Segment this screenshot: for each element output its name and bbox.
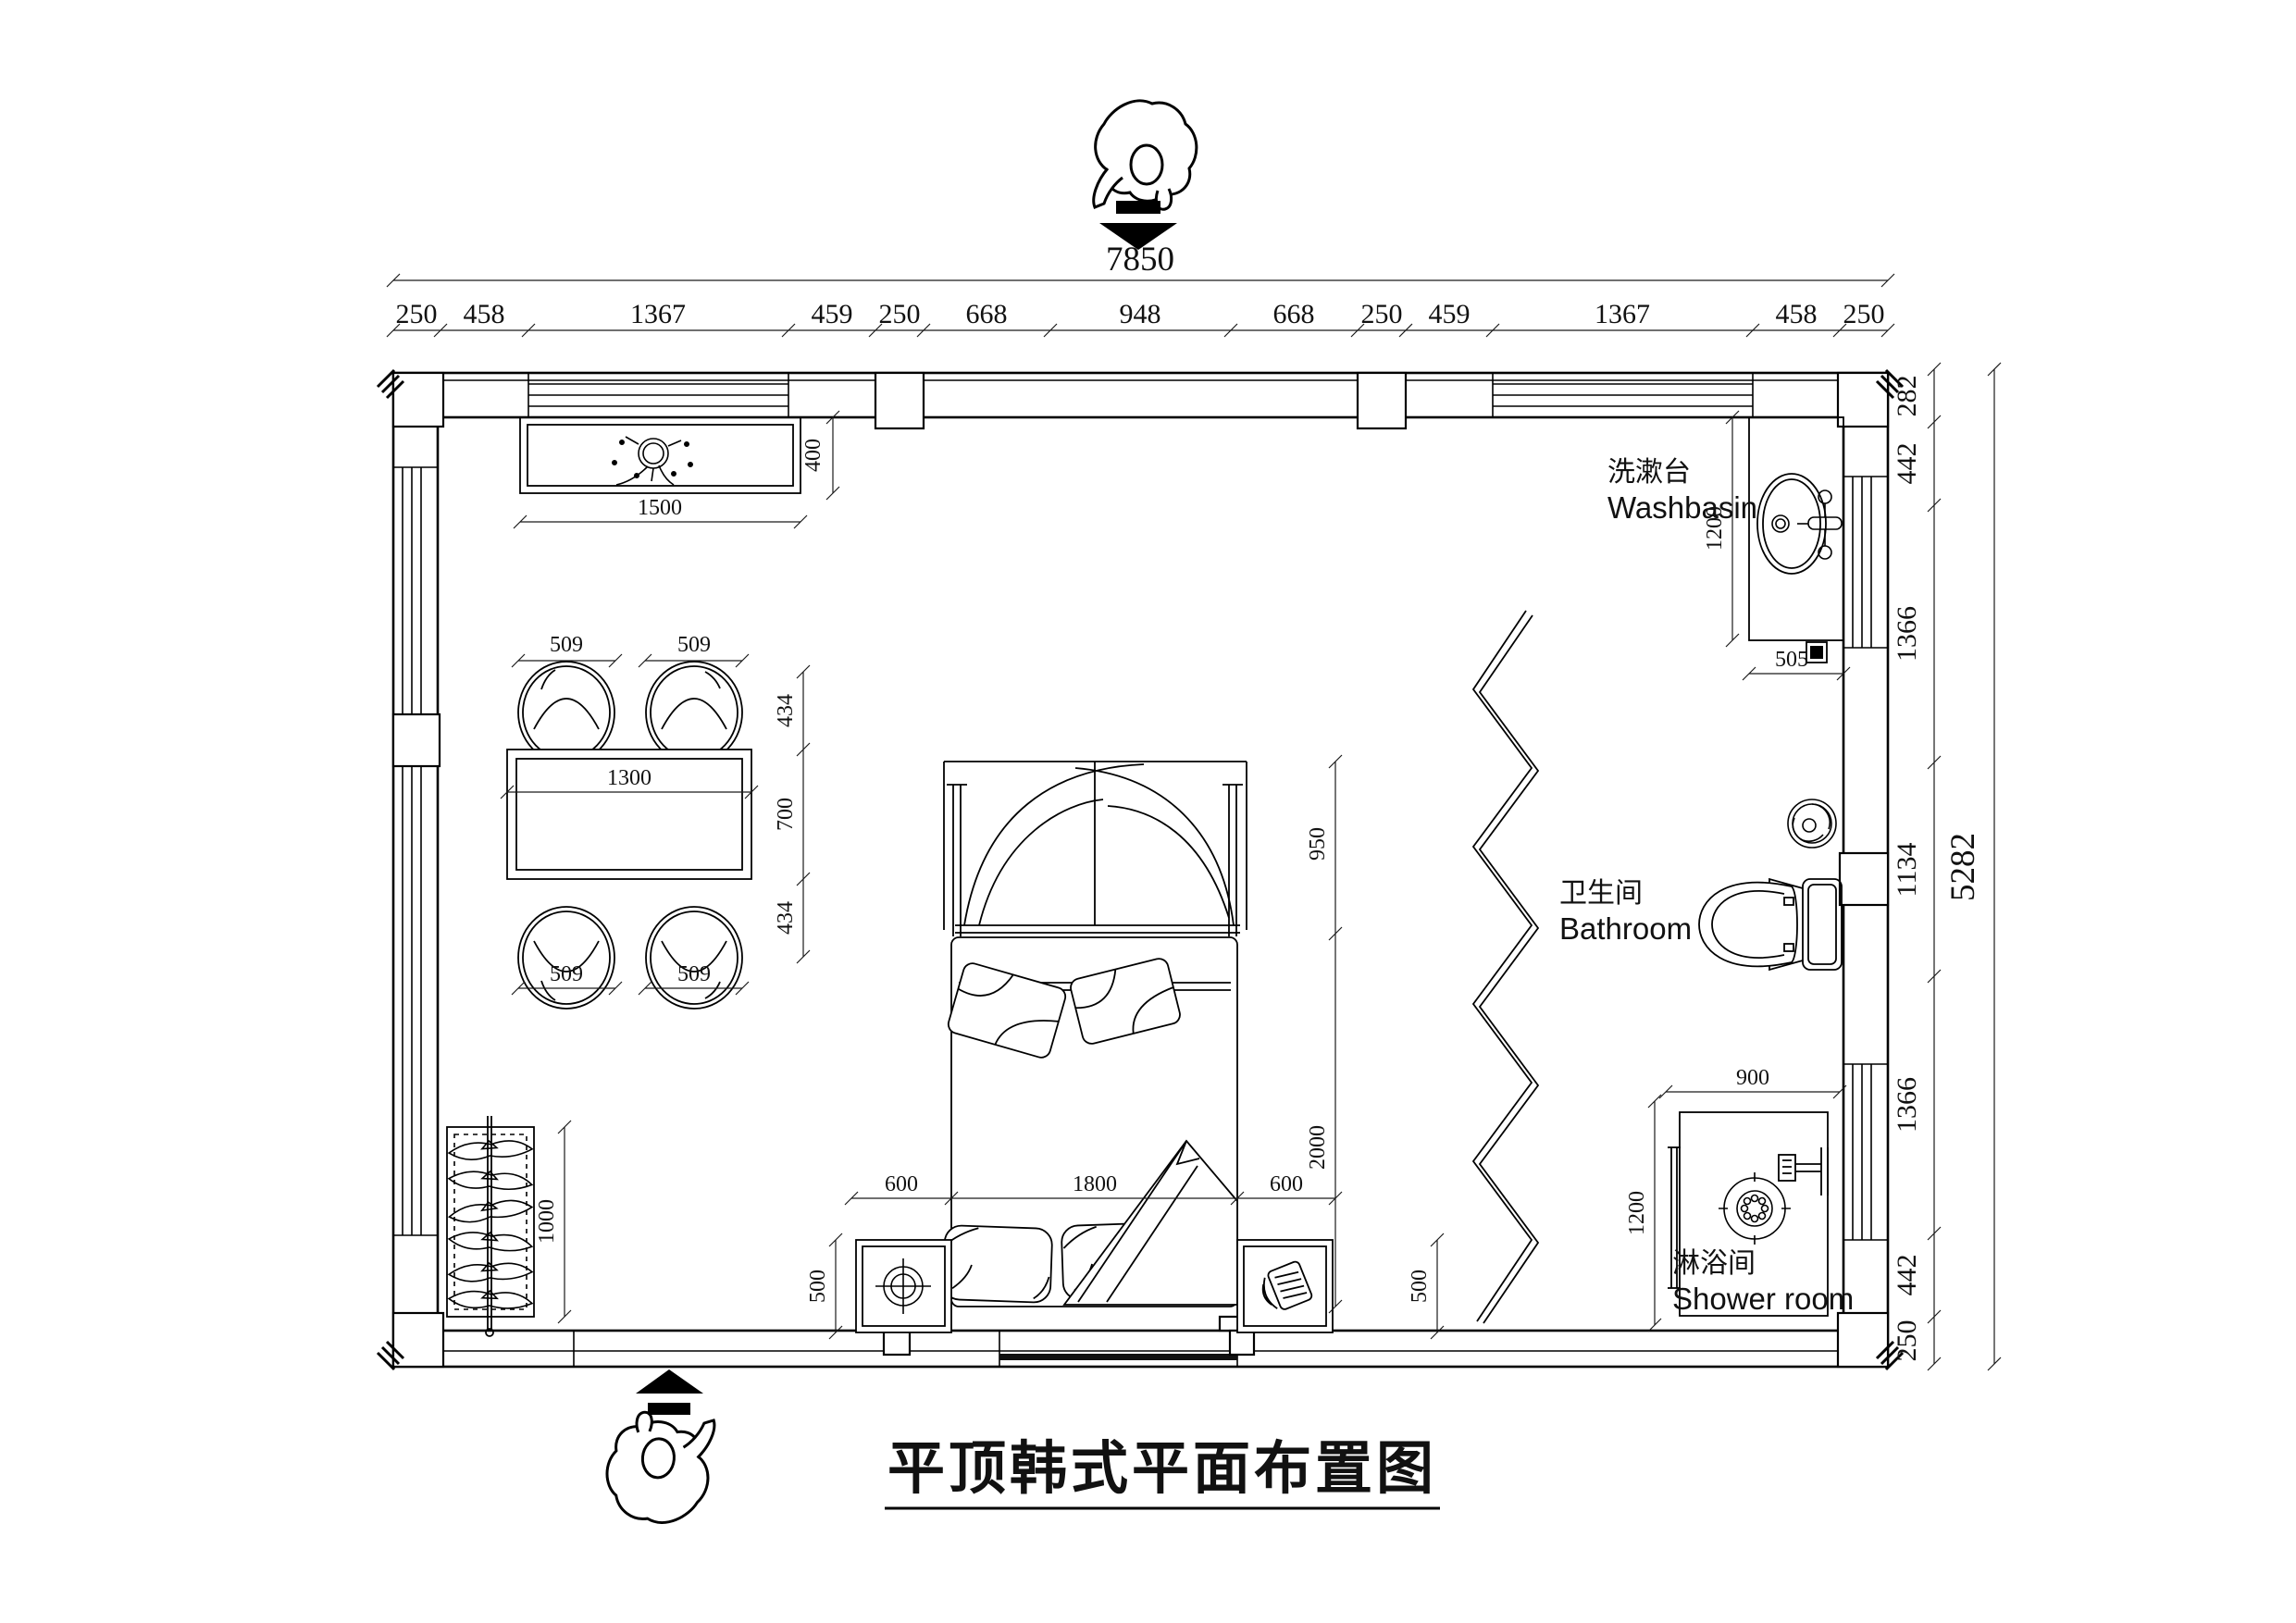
chair xyxy=(646,662,742,763)
pillow xyxy=(943,1225,1053,1303)
dim-top-12: 250 xyxy=(1843,299,1885,329)
dining-table xyxy=(507,662,751,1009)
bed-canopy xyxy=(944,762,1247,936)
dim-right-0: 282 xyxy=(1892,376,1922,417)
dim-top-total: 7850 xyxy=(1106,241,1174,279)
dim-shower-d: 1200 xyxy=(1625,1191,1649,1235)
dim-top-0: 250 xyxy=(396,299,438,329)
dim-top-10: 1367 xyxy=(1595,299,1650,329)
dim-wardrobe: 1000 xyxy=(535,1121,571,1323)
nightstand-right xyxy=(1237,1240,1333,1332)
cushion xyxy=(1069,957,1182,1046)
dim-bed-canopy: 950 xyxy=(1306,827,1330,861)
person-figure-bottom xyxy=(603,1409,715,1527)
dim-right: 282 442 1366 1134 1366 442 250 5282 xyxy=(1892,363,2001,1370)
dim-table-w: 1300 xyxy=(607,766,652,790)
dim-right-2: 1366 xyxy=(1892,606,1922,662)
dim-top: 7850 250 458 1367 459 250 668 948 668 25… xyxy=(387,241,1894,337)
window-right-lower xyxy=(1843,1064,1888,1240)
label-washbasin-en: Washbasin xyxy=(1607,490,1757,525)
dim-washbasin-w: 505 xyxy=(1775,648,1808,672)
dim-cabinet-w: 1500 xyxy=(638,496,682,520)
cushion xyxy=(946,961,1067,1059)
chair xyxy=(518,662,614,763)
dim-top-3: 459 xyxy=(812,299,853,329)
dim-top-8: 250 xyxy=(1361,299,1403,329)
floor-plan-page: 7850 250 458 1367 459 250 668 948 668 25… xyxy=(0,0,2296,1623)
dim-chair-br: 509 xyxy=(677,962,711,986)
window-left-upper xyxy=(393,467,438,714)
dim-right-1: 442 xyxy=(1892,443,1922,485)
wardrobe xyxy=(447,1116,534,1336)
dim-top-9: 459 xyxy=(1429,299,1471,329)
dim-nightstand-r: 500 xyxy=(1408,1270,1432,1303)
dim-top-11: 458 xyxy=(1776,299,1818,329)
dim-right-6: 250 xyxy=(1892,1320,1922,1362)
dim-chair-tl: 509 xyxy=(550,633,583,657)
dim-chair-tr: 509 xyxy=(677,633,711,657)
dim-bed-w: 1800 xyxy=(1073,1172,1117,1196)
dim-table-side-b: 434 xyxy=(774,901,798,935)
person-figure-top xyxy=(1094,101,1197,209)
dim-shower-w: 900 xyxy=(1736,1066,1769,1090)
label-washbasin-zh: 洗漱台 xyxy=(1607,457,1691,488)
label-shower-zh: 淋浴间 xyxy=(1672,1248,1756,1279)
dim-cabinet: 1500 400 xyxy=(514,411,839,528)
nightstand-left xyxy=(856,1240,951,1332)
toilet xyxy=(1699,879,1842,970)
dim-right-4: 1366 xyxy=(1892,1077,1922,1133)
shower-drain-icon xyxy=(1719,1172,1791,1245)
entry-arrow-up-icon xyxy=(636,1369,703,1415)
label-bathroom-en: Bathroom xyxy=(1559,911,1692,946)
window-left-lower xyxy=(393,766,438,1235)
exhaust-fan-icon xyxy=(1788,799,1836,848)
dim-cabinet-d: 400 xyxy=(801,439,825,472)
dim-top-7: 668 xyxy=(1273,299,1315,329)
window-right-upper xyxy=(1843,477,1888,648)
chair xyxy=(518,907,614,1009)
drawing-title: 平顶韩式平面布置图 xyxy=(887,1437,1437,1501)
plant-decor xyxy=(613,437,692,485)
washbasin-counter xyxy=(1749,417,1843,663)
bed xyxy=(943,937,1237,1307)
dim-wardrobe-len: 1000 xyxy=(535,1199,559,1244)
dim-top-4: 250 xyxy=(879,299,921,329)
dim-bed-len: 2000 xyxy=(1306,1125,1330,1170)
label-bathroom-zh: 卫生间 xyxy=(1559,878,1643,909)
folding-screen-partition xyxy=(1473,611,1538,1323)
dim-chair-bl: 509 xyxy=(550,962,583,986)
dim-top-2: 1367 xyxy=(630,299,686,329)
dim-table-side-t: 434 xyxy=(774,694,798,727)
clothes-hangers xyxy=(448,1138,533,1310)
floor-drain-icon xyxy=(1806,642,1827,663)
faucet-icon xyxy=(1797,490,1842,559)
dim-right-total: 5282 xyxy=(1944,833,1982,901)
floor-plan-drawing: 7850 250 458 1367 459 250 668 948 668 25… xyxy=(0,0,2296,1623)
dim-right-5: 442 xyxy=(1892,1255,1922,1296)
console-cabinet xyxy=(520,417,800,493)
dim-top-6: 948 xyxy=(1120,299,1161,329)
dim-top-5: 668 xyxy=(966,299,1008,329)
label-shower-en: Shower room xyxy=(1672,1282,1854,1316)
dim-top-1: 458 xyxy=(464,299,505,329)
shower-head-icon xyxy=(1779,1147,1828,1196)
dim-nightstand-l: 500 xyxy=(806,1270,830,1303)
dim-right-3: 1134 xyxy=(1892,843,1922,898)
entry-threshold xyxy=(999,1354,1237,1360)
dim-bed-side-r: 600 xyxy=(1270,1172,1303,1196)
chair xyxy=(646,907,742,1009)
blanket xyxy=(1064,1141,1237,1305)
dim-bed-side-l: 600 xyxy=(885,1172,918,1196)
dim-table-d: 700 xyxy=(774,798,798,831)
